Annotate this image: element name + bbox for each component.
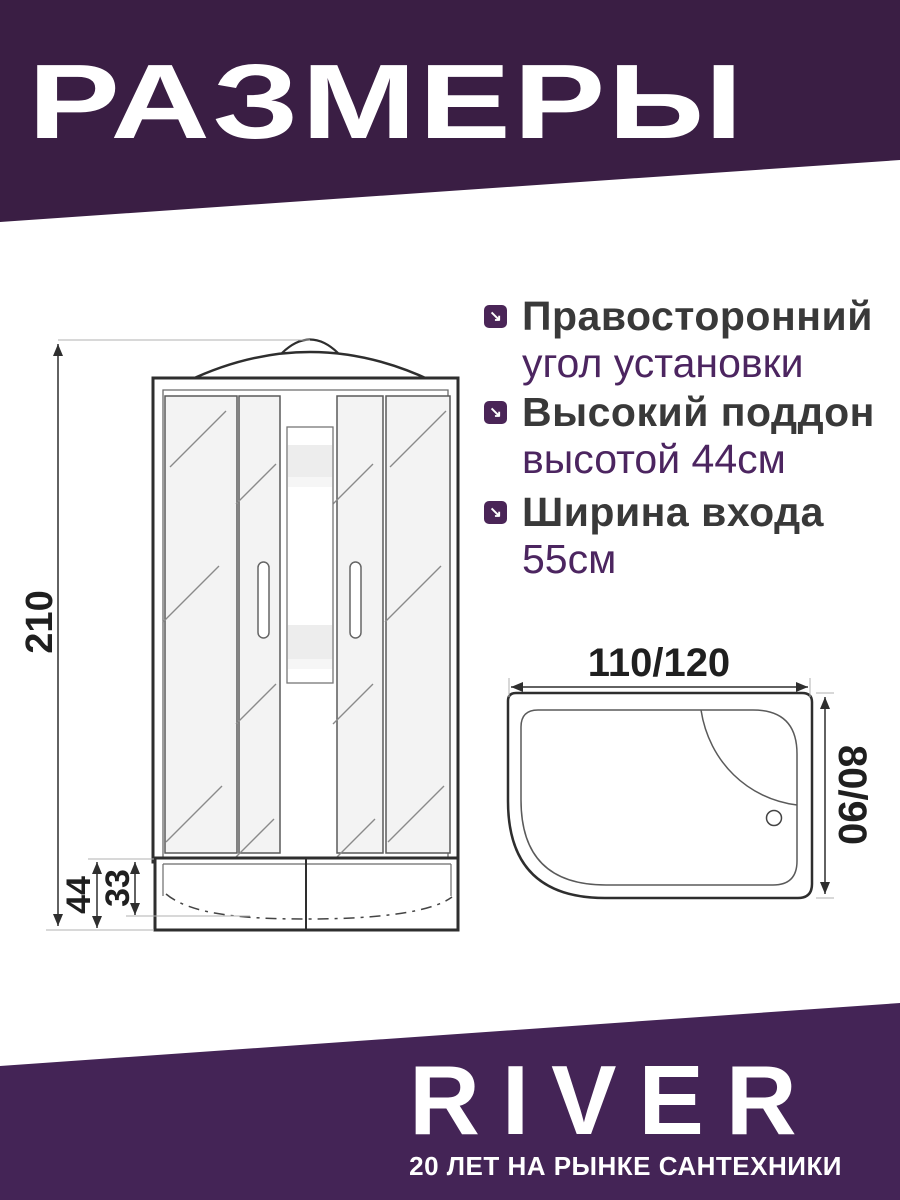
feature-text: Высокий поддон высотой 44см	[522, 392, 875, 480]
brand-logo: RIVER	[409, 1051, 864, 1149]
feature-text: Ширина входа 55см	[522, 492, 824, 580]
feature-subtitle: 55см	[522, 539, 824, 580]
tray-height-dimension-label: 44	[60, 876, 98, 914]
drain-circle	[767, 811, 782, 826]
feature-item-entrance-width: ↘ Ширина входа 55см	[484, 492, 824, 580]
depth-dimension-label: 80/90	[830, 745, 874, 845]
infographic-page: РАЗМЕРЫ	[0, 0, 900, 1200]
feature-text: Правосторонний угол установки	[522, 296, 873, 384]
feature-subtitle: высотой 44см	[522, 439, 875, 480]
arrow-down-right-icon: ↘	[484, 501, 507, 524]
feature-title: Правосторонний	[522, 296, 873, 338]
door-handle-left	[258, 562, 269, 638]
arrow-down-right-icon: ↘	[484, 401, 507, 424]
front-view-drawing: 210 44 33	[19, 340, 458, 931]
arrow-down-right-icon: ↘	[484, 305, 507, 328]
tray-front	[155, 858, 458, 930]
feature-title: Высокий поддон	[522, 392, 875, 434]
width-dimension-label: 110/120	[588, 641, 730, 685]
door-handle-right	[350, 562, 361, 638]
height-dimension-label: 210	[19, 590, 61, 653]
feature-item-high-tray: ↘ Высокий поддон высотой 44см	[484, 392, 875, 480]
brand-tagline: 20 ЛЕТ НА РЫНКЕ САНТЕХНИКИ	[409, 1151, 842, 1181]
top-view-drawing: 110/120 80/90	[508, 641, 874, 898]
brand-logo-block: RIVER 20 ЛЕТ НА РЫНКЕ САНТЕХНИКИ	[409, 1051, 842, 1181]
feature-subtitle: угол установки	[522, 343, 873, 384]
tray-depth-dimension-label: 33	[99, 869, 137, 907]
feature-title: Ширина входа	[522, 492, 824, 534]
feature-item-installation-side: ↘ Правосторонний угол установки	[484, 296, 873, 384]
